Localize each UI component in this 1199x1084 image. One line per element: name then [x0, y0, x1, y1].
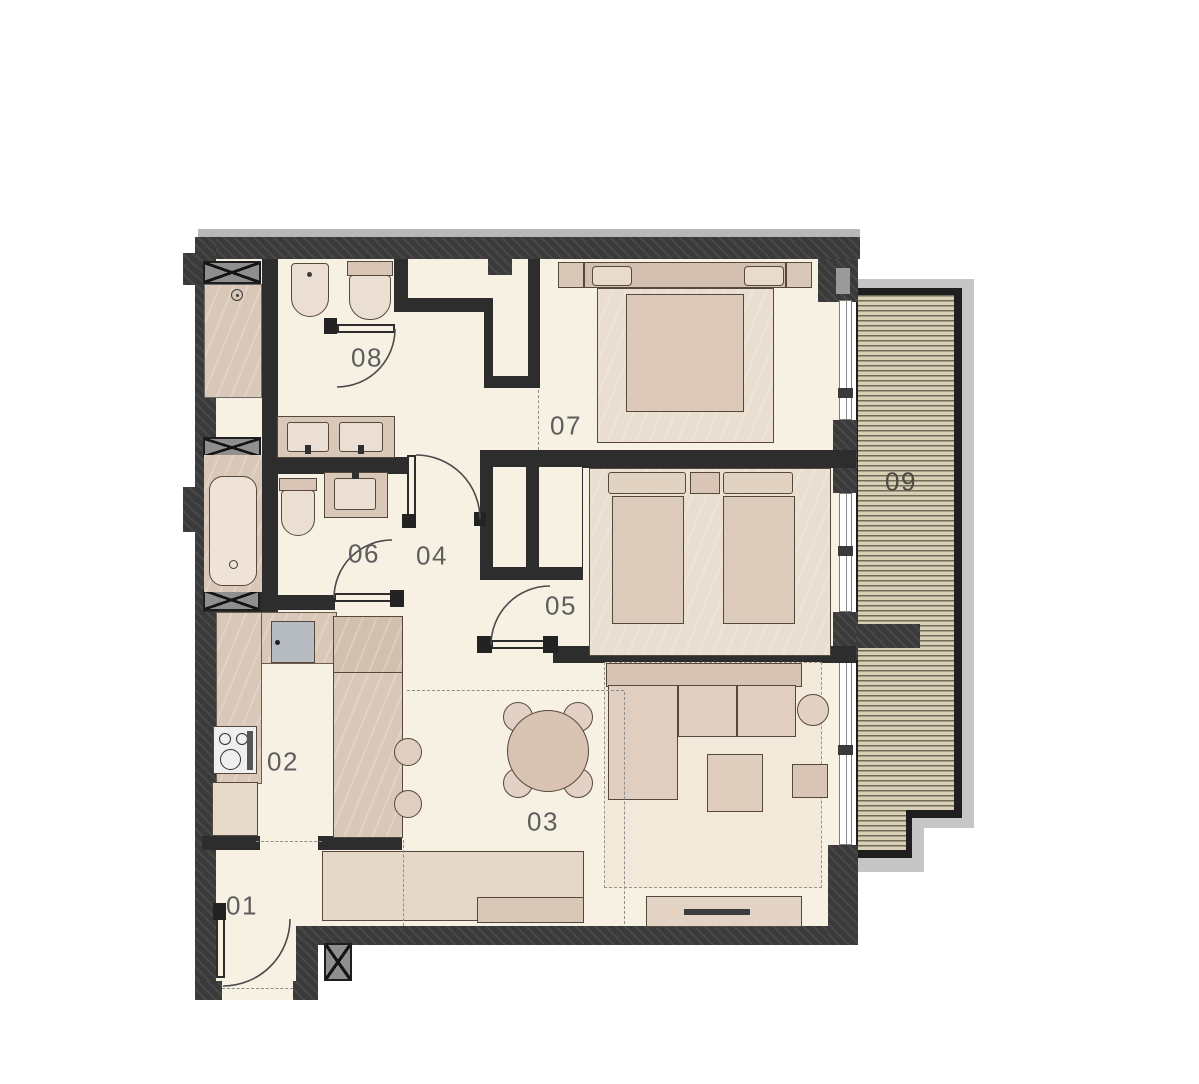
side-table-square — [792, 764, 828, 798]
outer-insulation-strip — [198, 229, 860, 237]
closet-wall-bottom — [484, 568, 583, 580]
tv — [684, 909, 750, 915]
sideboard-insert — [477, 897, 584, 923]
window-mullion-2 — [838, 546, 853, 556]
duct-shaft-entry — [324, 943, 352, 981]
pillow-07-left — [592, 266, 632, 286]
column-top-center — [488, 241, 512, 275]
nightstand-07-right — [786, 262, 812, 288]
wall-top — [195, 237, 860, 259]
wall-08-south-nook — [394, 298, 493, 312]
window-bedroom-07 — [839, 300, 852, 420]
closet-compartment-2 — [538, 466, 583, 568]
door-leaf-05 — [491, 640, 550, 649]
room-label-02: 02 — [267, 747, 299, 778]
pillow-05-right — [723, 472, 793, 494]
room-label-01: 01 — [226, 891, 258, 922]
shower — [204, 284, 262, 398]
balcony-privacy-stub — [856, 624, 920, 648]
bed-07-duvet — [626, 294, 744, 412]
wall-kitchen-stub — [202, 836, 260, 850]
washbasin-tap — [352, 470, 359, 479]
mattress-05-right — [723, 496, 795, 624]
closet-divider — [527, 455, 538, 580]
window-mullion-3 — [838, 745, 853, 755]
wall-island-south — [318, 836, 402, 850]
wall-07-west — [528, 259, 540, 388]
door-leaf-06 — [334, 593, 392, 602]
balcony-deck — [858, 295, 954, 850]
toilet-06 — [279, 478, 317, 538]
bar-stool-2 — [394, 790, 422, 818]
burner-small-1 — [219, 733, 231, 745]
pier-left-upper — [183, 253, 196, 285]
pillow-05-left — [608, 472, 686, 494]
room-label-04: 04 — [416, 541, 448, 572]
door-leaf-entry — [216, 918, 225, 978]
door-jamb-05a — [477, 636, 492, 653]
kitchen-cabinet-low — [212, 782, 258, 836]
door-jamb-06 — [390, 590, 404, 607]
burner-large — [220, 749, 241, 770]
wall-wet-column — [262, 259, 278, 612]
cooktop-panel — [247, 731, 253, 770]
zone-line-foyer — [256, 841, 322, 842]
zone-line-kitchen — [403, 840, 404, 926]
room-label-09: 09 — [885, 467, 917, 498]
nightstand-07-left — [558, 262, 584, 288]
kitchen-sink-tap — [275, 640, 280, 645]
zone-line-dining — [407, 690, 624, 691]
wall-06-south — [262, 595, 335, 610]
room-label-05: 05 — [545, 591, 577, 622]
closet-compartment-1 — [492, 466, 527, 568]
door-leaf-07 — [407, 455, 416, 519]
wall-foyer-bottom-left — [195, 981, 222, 1000]
mattress-05-left — [612, 496, 684, 624]
side-table-round — [797, 694, 829, 726]
cooktop — [213, 726, 257, 774]
door-jamb-entry — [213, 903, 226, 920]
sofa-chaise — [608, 685, 678, 800]
bar-stool-1 — [394, 738, 422, 766]
door-jamb-07a — [402, 514, 416, 528]
door-leaf-08 — [337, 324, 395, 333]
door-jamb-05b — [543, 636, 558, 653]
sofa-back — [606, 663, 802, 687]
kitchen-island-cabinet — [334, 617, 402, 673]
dining-table — [507, 710, 589, 792]
washbasin — [334, 478, 376, 510]
entry-threshold-line — [222, 988, 293, 989]
entry-threshold — [222, 981, 293, 1000]
duct-shaft-low — [203, 589, 260, 611]
door-jamb-08 — [324, 318, 337, 334]
sofa-cushion-1 — [678, 685, 737, 737]
room-label-06: 06 — [348, 539, 380, 570]
wall-foyer-right — [296, 941, 318, 993]
wall-bottom — [296, 926, 858, 945]
bidet-dot — [307, 272, 312, 277]
pillow-07-right — [744, 266, 784, 286]
bathtub-drain — [229, 560, 238, 569]
vanity-tap-left — [305, 445, 311, 454]
zone-line-hall-07 — [538, 390, 539, 450]
door-jamb-07b — [474, 512, 486, 526]
window-mullion-1 — [838, 388, 853, 398]
shower-drain-dot — [236, 294, 239, 297]
vanity-tap-right — [358, 445, 364, 454]
toilet-08 — [347, 261, 393, 321]
bathtub — [209, 476, 257, 586]
sofa-cushion-2 — [737, 685, 796, 737]
toilet-08-bowl — [349, 275, 391, 320]
duct-shaft-top — [203, 261, 261, 284]
room-label-03: 03 — [527, 807, 559, 838]
room-label-08: 08 — [351, 343, 383, 374]
zone-line-living — [624, 692, 625, 924]
toilet-08-tank — [347, 261, 393, 276]
corner-window-slit — [836, 268, 850, 294]
room-label-07: 07 — [550, 411, 582, 442]
nightstand-05-center — [690, 472, 720, 494]
toilet-06-bowl — [281, 490, 315, 536]
floor-plan-canvas: 01 02 03 04 05 06 07 08 09 — [0, 0, 1199, 1084]
pier-left-lower — [183, 487, 196, 532]
foyer-floor — [216, 926, 298, 983]
wall-right-bottom-corner — [828, 845, 858, 945]
coffee-table — [707, 754, 763, 812]
